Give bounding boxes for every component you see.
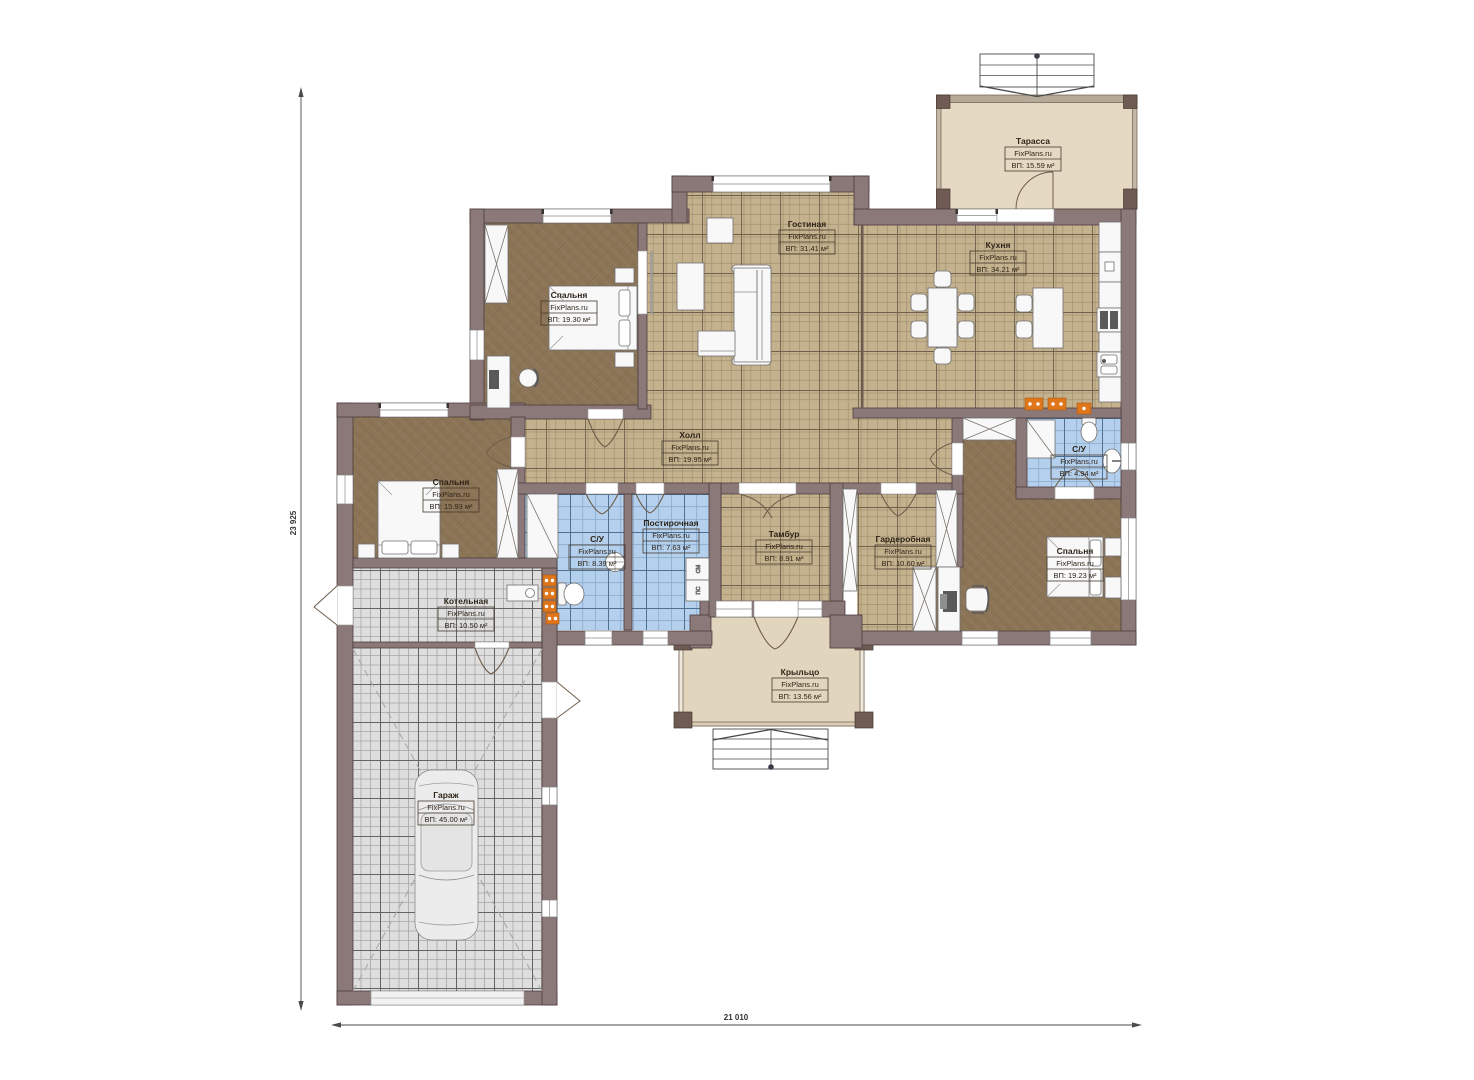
svg-text:С/У: С/У [590,534,605,544]
svg-text:Тамбур: Тамбур [769,529,800,539]
svg-text:ВП: 19.23 м²: ВП: 19.23 м² [1053,571,1097,580]
svg-text:ВП: 34.21 м²: ВП: 34.21 м² [976,265,1020,274]
svg-text:СМ: СМ [696,564,702,573]
svg-text:Крыльцо: Крыльцо [781,667,820,677]
svg-text:FixPlans.ru: FixPlans.ru [671,443,709,452]
svg-text:С/У: С/У [1072,444,1087,454]
svg-text:ВП: 10.60 м²: ВП: 10.60 м² [881,559,925,568]
svg-text:ВП: 8.91 м²: ВП: 8.91 м² [765,554,804,563]
svg-text:Спальня: Спальня [551,290,588,300]
svg-text:FixPlans.ru: FixPlans.ru [765,542,803,551]
svg-text:FixPlans.ru: FixPlans.ru [884,547,922,556]
svg-text:Холл: Холл [679,430,700,440]
svg-text:ВП: 15.59 м²: ВП: 15.59 м² [1011,161,1055,170]
svg-text:FixPlans.ru: FixPlans.ru [550,303,588,312]
svg-text:FixPlans.ru: FixPlans.ru [447,609,485,618]
svg-text:FixPlans.ru: FixPlans.ru [1056,559,1094,568]
svg-text:FixPlans.ru: FixPlans.ru [652,531,690,540]
svg-text:21 010: 21 010 [724,1013,749,1022]
svg-text:Гардеробная: Гардеробная [876,534,931,544]
svg-text:ВП: 19.95 м²: ВП: 19.95 м² [668,455,712,464]
svg-text:FixPlans.ru: FixPlans.ru [427,803,465,812]
svg-text:ВП: 8.39 м²: ВП: 8.39 м² [578,559,617,568]
svg-text:23 925: 23 925 [289,510,298,535]
svg-text:FixPlans.ru: FixPlans.ru [578,547,616,556]
svg-text:ВП: 45.00 м²: ВП: 45.00 м² [424,815,468,824]
svg-text:Тарасса: Тарасса [1016,136,1050,146]
svg-text:ВП: 7.63 м²: ВП: 7.63 м² [652,543,691,552]
svg-text:Кухня: Кухня [986,240,1011,250]
svg-text:FixPlans.ru: FixPlans.ru [979,253,1017,262]
svg-text:Спальня: Спальня [433,477,470,487]
svg-text:ВП: 15.93 м²: ВП: 15.93 м² [429,502,473,511]
svg-text:Гостиная: Гостиная [788,219,826,229]
svg-text:Гараж: Гараж [433,790,459,800]
svg-text:Постирочная: Постирочная [643,518,698,528]
svg-text:FixPlans.ru: FixPlans.ru [781,680,819,689]
svg-text:ПС: ПС [696,587,702,595]
svg-text:ВП: 31.41 м²: ВП: 31.41 м² [785,244,829,253]
svg-text:ВП: 10.50 м²: ВП: 10.50 м² [444,621,488,630]
svg-text:ВП: 4.94 м²: ВП: 4.94 м² [1060,469,1099,478]
svg-text:FixPlans.ru: FixPlans.ru [1060,457,1098,466]
svg-text:FixPlans.ru: FixPlans.ru [432,490,470,499]
svg-text:ВП: 13.56 м²: ВП: 13.56 м² [778,692,822,701]
svg-text:Котельная: Котельная [444,596,489,606]
svg-text:ВП: 19.30 м²: ВП: 19.30 м² [547,315,591,324]
svg-text:FixPlans.ru: FixPlans.ru [1014,149,1052,158]
svg-text:FixPlans.ru: FixPlans.ru [788,232,826,241]
svg-text:Спальня: Спальня [1057,546,1094,556]
